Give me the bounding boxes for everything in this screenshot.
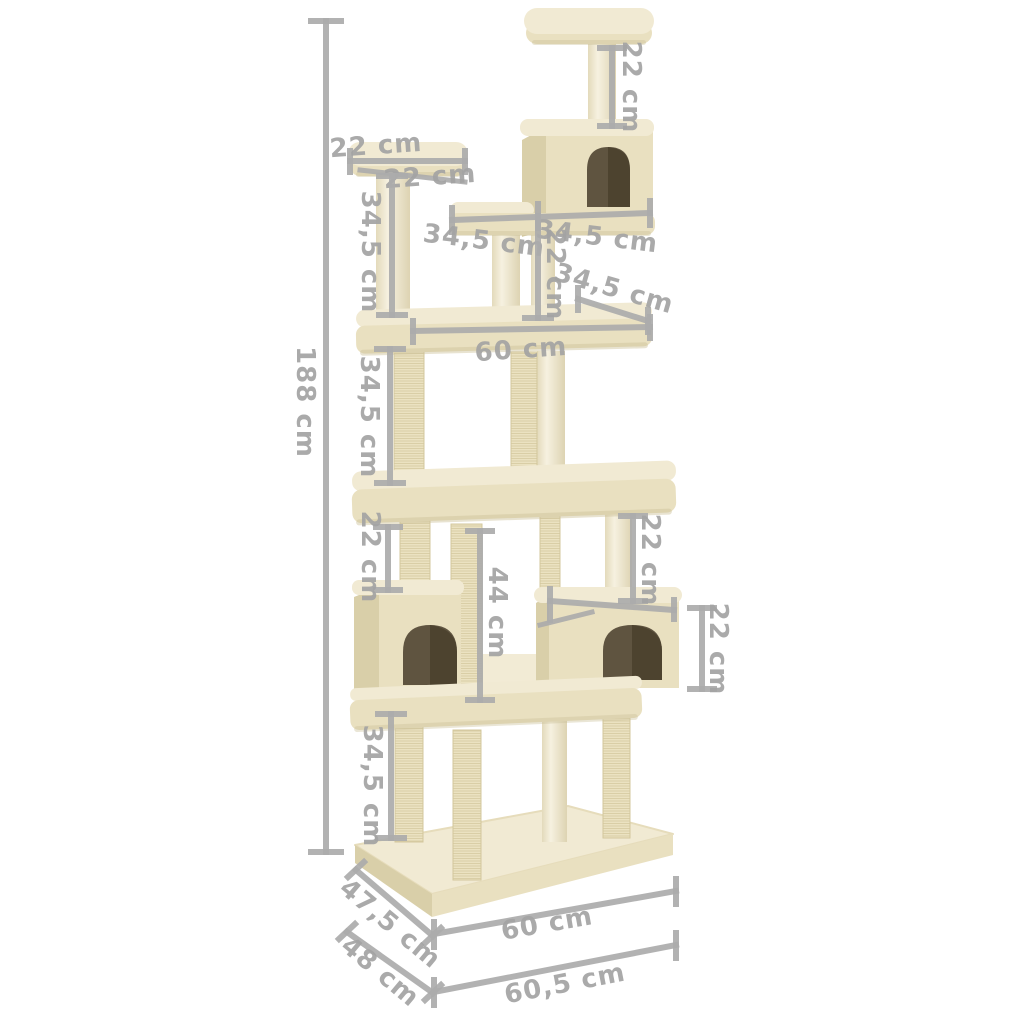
- dim-overall-height-label: 188 cm: [290, 346, 320, 458]
- dim-left-condo-post-label: 22 cm: [355, 511, 385, 604]
- product-dimension-diagram: 188 cm 22 cm 22 cm 22 cm 34,5 cm: [0, 0, 1024, 1024]
- dim-center-post-label: 44 cm: [482, 567, 512, 660]
- dim-right-condo-height-label: 22 cm: [703, 603, 733, 696]
- dim-base-width-upper-label: 60 cm: [499, 901, 596, 947]
- dim-base-post-label: 34,5 cm: [357, 725, 387, 848]
- dim-left-condo-post: 22 cm: [355, 511, 400, 604]
- dim-lower-post-label: 34,5 cm: [354, 356, 384, 479]
- dim-base-width-lower: 60,5 cm: [434, 933, 676, 1010]
- diagram-canvas: 188 cm 22 cm 22 cm 22 cm 34,5 cm: [0, 0, 1024, 1024]
- top-perch: [524, 8, 654, 45]
- dim-top-post-label: 22 cm: [616, 41, 646, 134]
- dim-upper-left-post-label: 34,5 cm: [355, 191, 385, 314]
- middle-posts: [394, 348, 565, 482]
- dim-right-condo-post-label: 22 cm: [635, 514, 665, 607]
- dim-right-condo-height: 22 cm: [690, 603, 733, 696]
